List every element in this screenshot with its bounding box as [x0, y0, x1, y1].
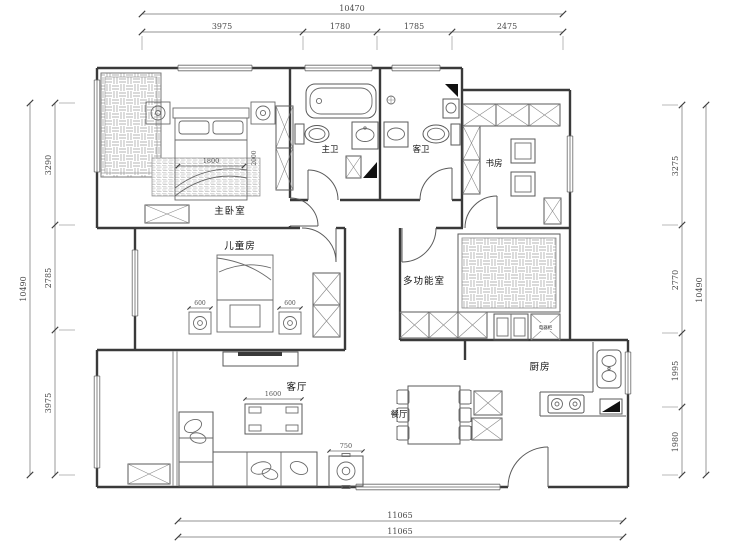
dim-left-overall: 10490 — [19, 276, 28, 301]
window-master-balcony-left — [94, 80, 101, 172]
dim-bottom-line1: 11065 — [387, 511, 412, 520]
dim-right-seg3: 1995 — [671, 361, 680, 381]
window-living-bottom — [356, 484, 500, 491]
label-study: 书房 — [485, 158, 502, 168]
label-living: 客厅 — [286, 381, 307, 393]
dim-right-overall: 10490 — [695, 277, 704, 302]
dim-left-seg1: 3290 — [44, 155, 53, 175]
label-kids-room: 儿童房 — [224, 240, 256, 252]
label-dining: 餐厅 — [390, 409, 408, 419]
dim-left-seg3: 3975 — [44, 393, 53, 413]
dim-top-seg1: 3975 — [212, 22, 232, 31]
dim-coffee-table: 1600 — [265, 390, 282, 398]
dim-right-seg1: 3275 — [671, 156, 680, 176]
dim-right-seg4: 1980 — [671, 432, 680, 452]
label-guest-bath: 客卫 — [412, 144, 430, 154]
dim-bed-length: 2000 — [251, 150, 258, 165]
dim-left-seg2: 2785 — [44, 268, 53, 288]
dim-top-seg2: 1780 — [330, 22, 350, 31]
dim-side-table: 750 — [340, 442, 352, 450]
label-master-bedroom: 主卧室 — [214, 205, 246, 217]
window-study-right — [567, 136, 574, 192]
dim-right-seg2: 2770 — [671, 270, 680, 290]
dim-kids-nightstand-right: 600 — [284, 300, 296, 307]
window-master-bath-top — [305, 65, 372, 72]
floor-drain — [387, 96, 395, 104]
dim-kids-nightstand-left: 600 — [194, 300, 206, 307]
dim-top-overall: 10470 — [339, 4, 364, 13]
label-master-bath: 主卫 — [321, 144, 339, 154]
label-multi-room: 多功能室 — [403, 275, 445, 287]
window-guest-bath-top — [392, 65, 440, 72]
label-appliance-cabinet: 电器柜 — [539, 324, 553, 331]
floor-plan-page: 10470 3975 1780 1785 2475 10490 3290 278… — [0, 0, 740, 555]
floor-plan-canvas: 10470 3975 1780 1785 2475 10490 3290 278… — [0, 0, 740, 555]
window-balcony-left — [94, 376, 101, 468]
dim-bottom-line2: 11065 — [387, 527, 412, 536]
dim-top-seg3: 1785 — [404, 22, 424, 31]
tatami-floor — [462, 238, 556, 308]
dim-bed-width: 1800 — [203, 157, 220, 165]
window-master-top — [178, 65, 252, 72]
dim-top-seg4: 2475 — [497, 22, 517, 31]
window-kitchen-right — [625, 352, 632, 394]
label-kitchen: 厨房 — [529, 361, 550, 373]
window-kids-left — [132, 250, 139, 316]
